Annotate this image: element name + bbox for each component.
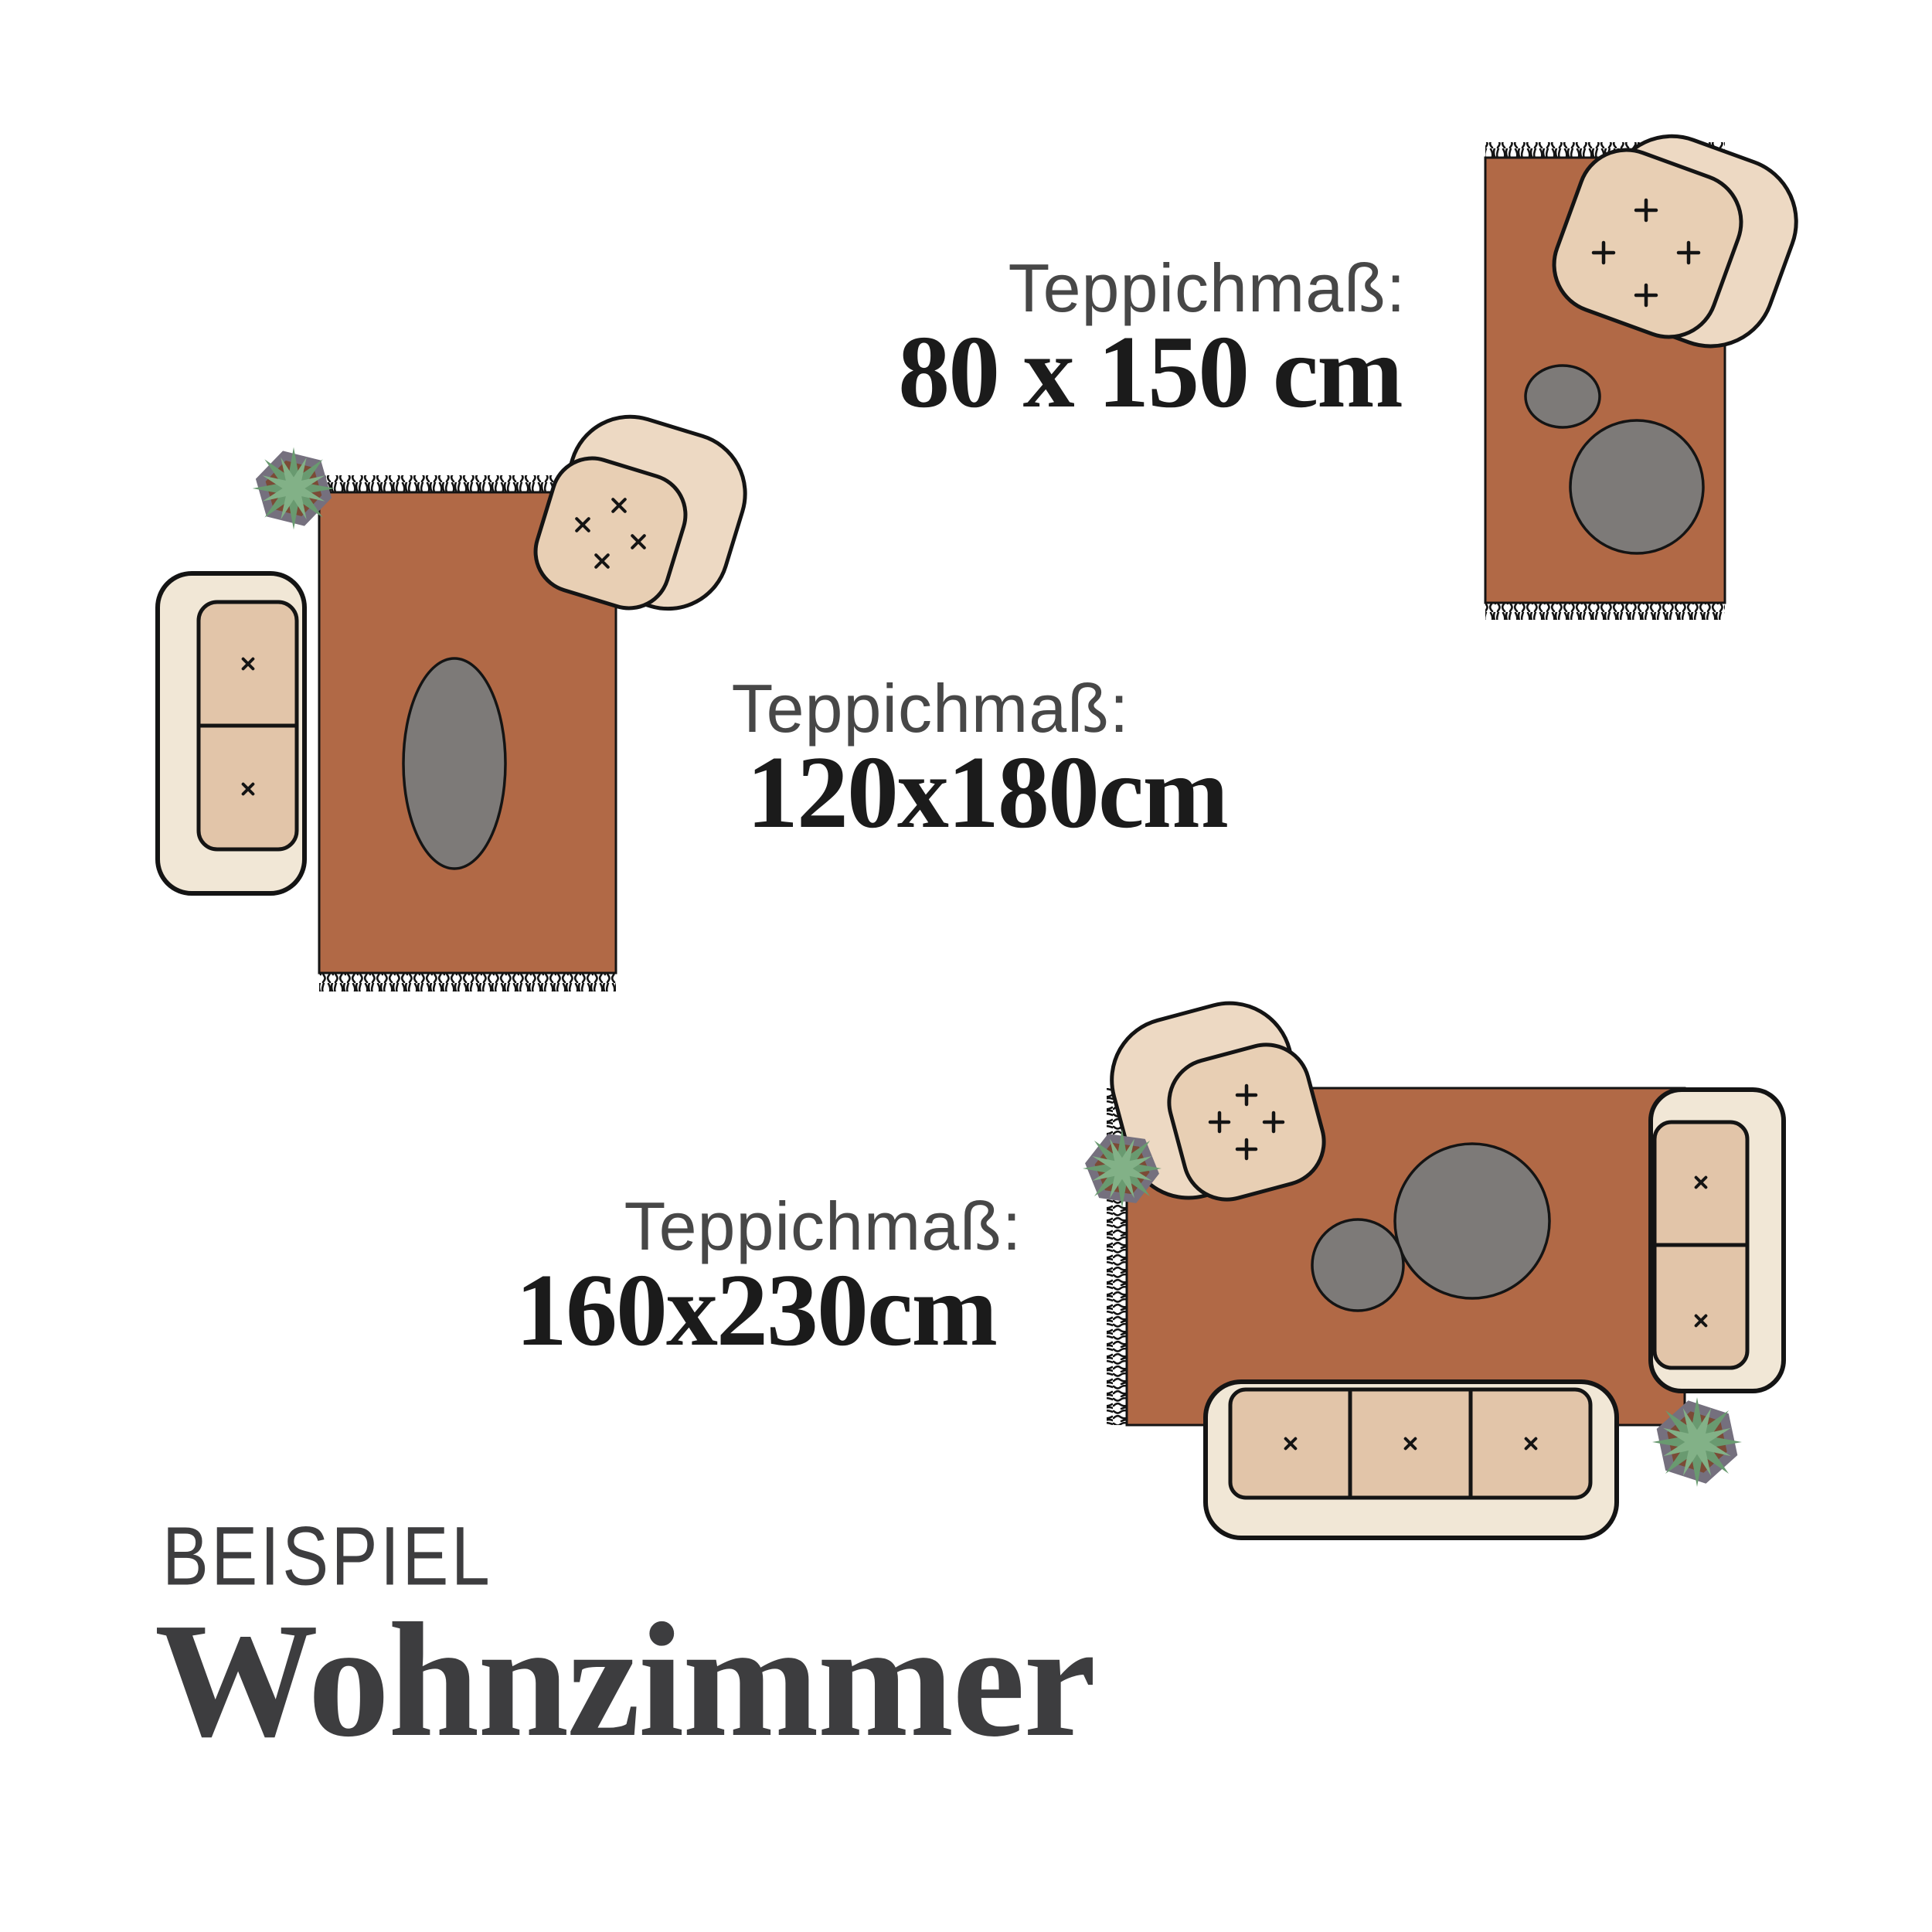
coffee-table-large-icon (1395, 1144, 1549, 1298)
sofa-bottom-icon (1206, 1382, 1617, 1538)
sofa-icon (158, 573, 304, 893)
scene-120x180 (158, 399, 760, 992)
scene-160x230 (1080, 987, 1784, 1538)
sofa-right-icon (1651, 1090, 1784, 1391)
size-value-160x230: 160x230cm (515, 1250, 996, 1369)
coffee-table-small-icon (1312, 1219, 1403, 1311)
side-table-large-icon (1570, 420, 1703, 553)
infographic-canvas: Teppichmaß: 80 x 150 cm Teppichmaß: 120x… (0, 0, 1932, 1932)
side-table-small-icon (1526, 366, 1600, 427)
scene-80x150 (1485, 109, 1814, 620)
page-title: Wohnzimmer (155, 1586, 1095, 1774)
rug-fringe-bottom (319, 971, 616, 992)
size-value-80x150: 80 x 150 cm (898, 312, 1402, 431)
size-value-120x180: 120x180cm (747, 733, 1227, 852)
coffee-table-icon (403, 658, 505, 869)
rug-fringe-bottom (1485, 601, 1725, 620)
